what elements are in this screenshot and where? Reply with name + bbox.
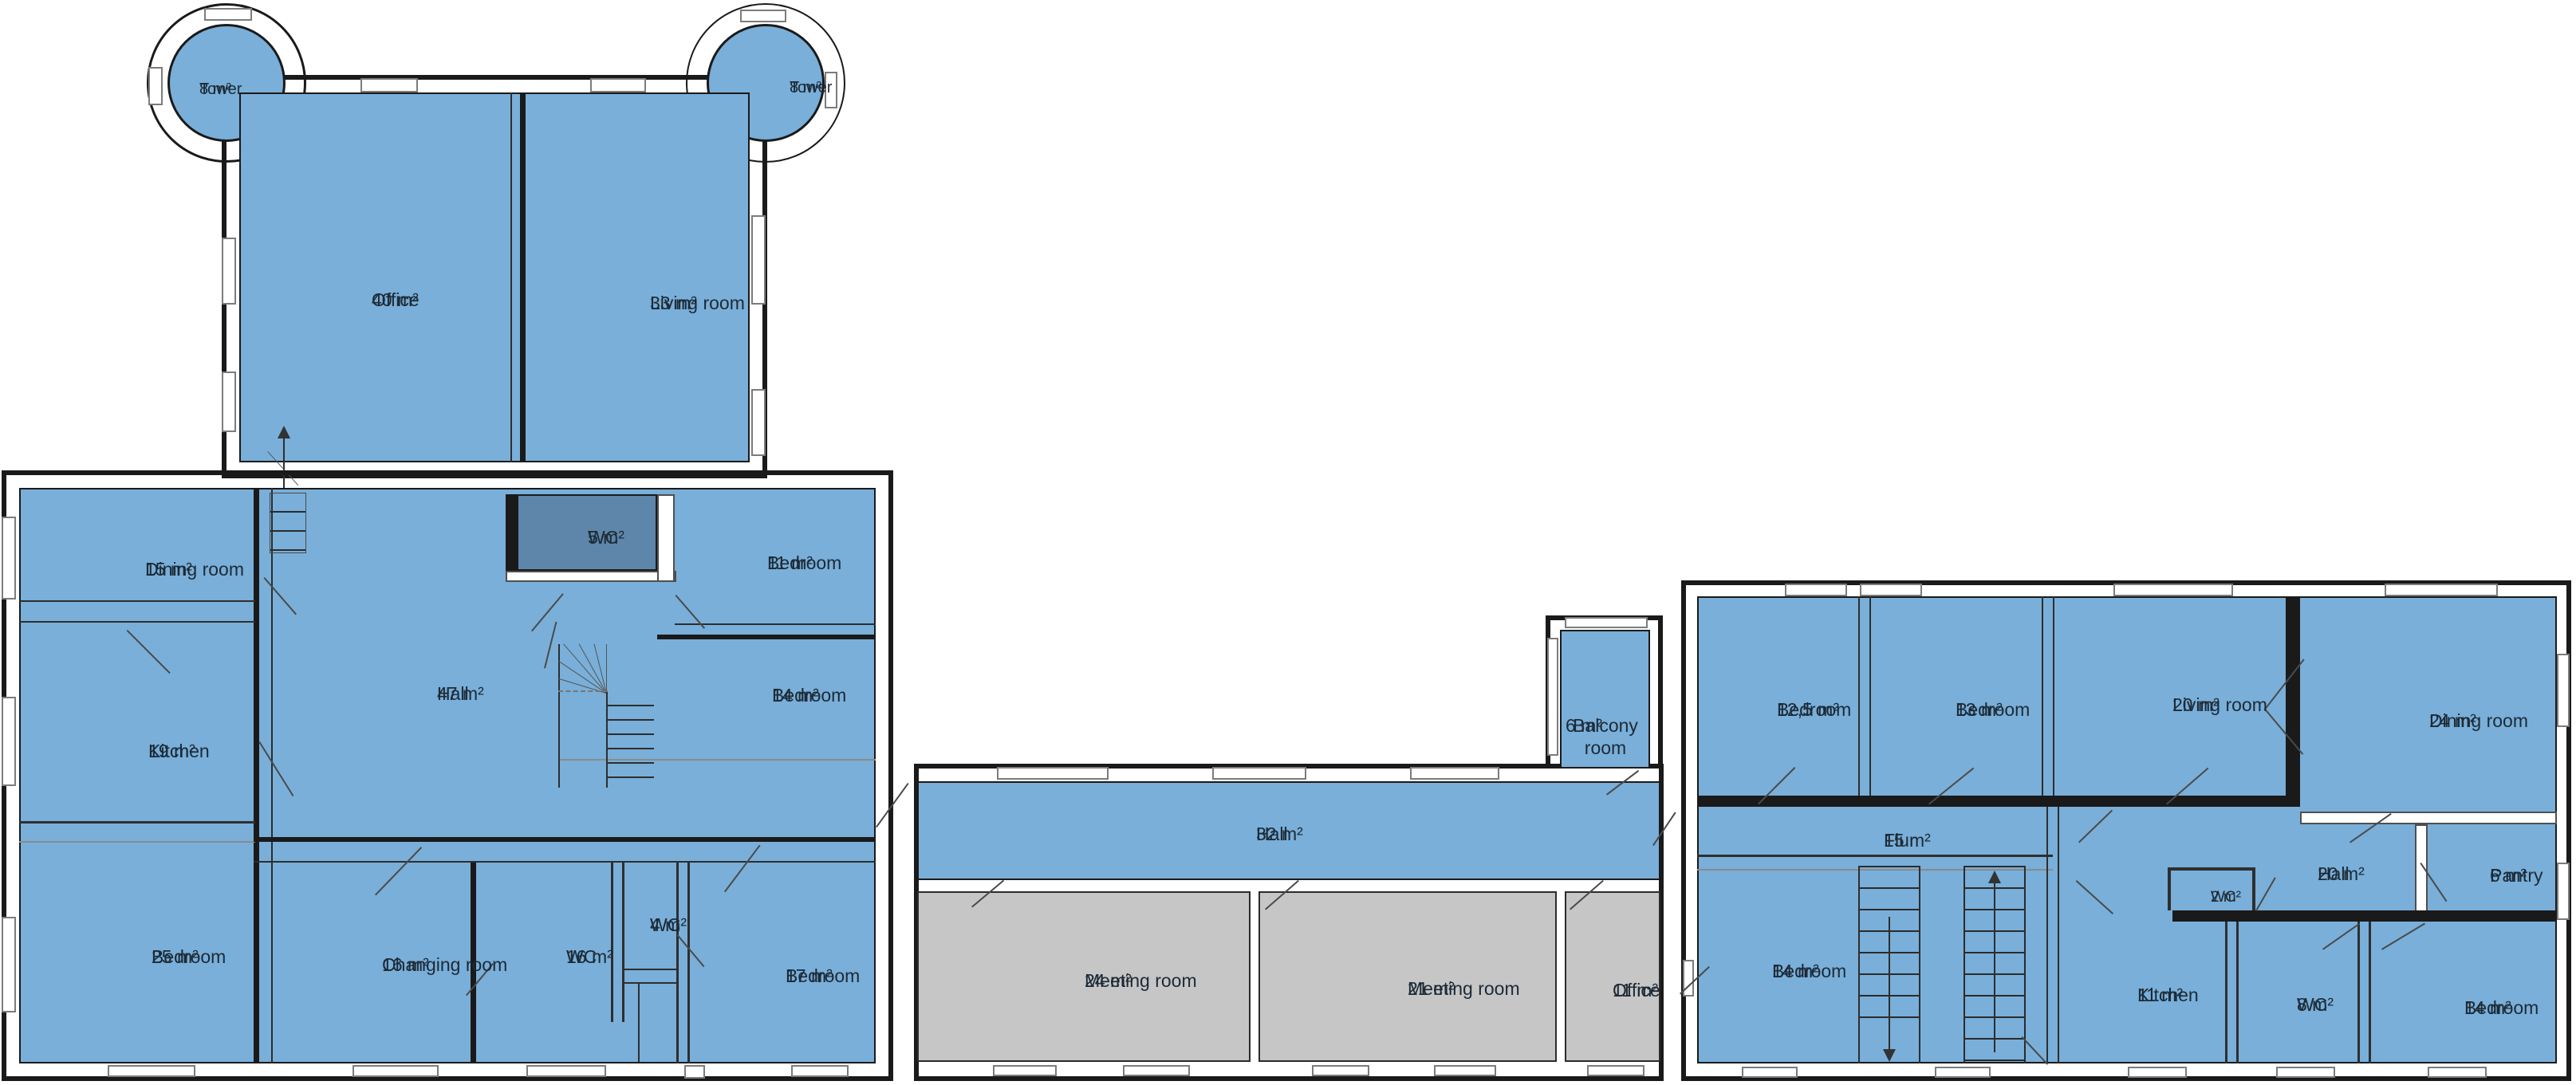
room-name: Hall [1256,823,1288,845]
room-name: WC [588,526,618,548]
room-name: Bedroom [2464,997,2539,1019]
window [2113,584,2233,596]
window [204,8,252,21]
room-name: Living room [2172,694,2267,716]
wall [2172,910,2557,922]
wall [675,623,876,625]
wall [1858,596,1860,796]
window [1785,584,1847,596]
window [1410,767,1499,780]
staircase-winder-tread [606,644,607,694]
wall [19,621,255,623]
window [740,10,786,22]
window [1742,1067,1798,1078]
staircase-winder-tread [608,705,654,706]
window [2557,654,2570,727]
wall [2168,867,2171,910]
room-name: Dining room [2429,710,2528,732]
staircase-winder-edge [558,644,560,788]
window [1860,584,1922,596]
wall [2357,922,2360,1063]
staircase-winder-tread [608,748,654,749]
staircase-arrow-line [1994,880,1995,1052]
room-name: Office [372,289,419,311]
room-name: WC [566,945,597,968]
wall [506,494,517,571]
staircase-winder-dash [558,690,608,692]
room-name: Office [1613,979,1660,1001]
room-name: Flur [1884,829,1916,851]
fixture [624,982,676,984]
window [1547,638,1558,756]
wall [510,92,512,462]
window [751,215,766,305]
room-name: Meeting room [1085,969,1197,992]
window [1123,1065,1190,1076]
wall [254,488,259,1063]
room-name: Bedroom [1956,698,2030,721]
window [222,371,236,432]
room-name: Bedroom [1777,698,1851,721]
window [2,517,16,600]
wall [2415,824,2428,912]
wall [19,600,255,602]
wall [2058,807,2059,1063]
window [2,917,16,1012]
staircase-arrow-line [1889,917,1890,1051]
room-name: Bedroom [786,965,860,987]
staircase-winder-rail [606,692,608,788]
wall [271,488,273,1063]
wall [254,837,876,842]
wall [1869,596,1871,796]
wall [1697,796,2300,807]
fixture [638,982,640,1062]
wall [687,863,690,1063]
window [791,1065,849,1077]
wall [254,861,876,863]
wall [657,494,675,582]
window [526,1065,606,1077]
building-north-floor [239,92,750,462]
window [1565,617,1648,628]
window [1587,1065,1644,1076]
room-name: Pantry [2490,864,2543,886]
room-name: Kitchen [2137,984,2199,1006]
window [2,697,16,786]
staircase-arrow-down [1883,1049,1896,1062]
window [1312,1065,1369,1076]
window [684,1065,705,1079]
wall [2252,867,2255,910]
entry-arrow-head [278,426,290,438]
room-name: WC [650,914,680,936]
room-wc-5-floor[interactable] [517,494,657,571]
room-name: Balcony room [1566,714,1645,759]
wall [506,571,676,582]
window [590,78,646,92]
window [1212,767,1306,780]
fixture [624,969,676,970]
wall [2236,922,2239,1063]
wall [2053,596,2054,796]
room-name: Hall [2318,863,2350,885]
wall [622,863,624,1022]
room-name: Dining room [145,558,244,580]
wall [657,635,876,639]
room-name: Tower [790,78,832,97]
window [2276,1067,2335,1078]
window [222,238,236,305]
staircase-edge [1919,866,1920,1063]
wall [1697,855,2053,857]
window [2385,584,2498,596]
room-name: Meeting room [1408,977,1520,1000]
window [353,1065,439,1077]
staircase-winder-tread [608,733,654,735]
window [1683,960,1694,997]
wall [2225,922,2227,1063]
room-name: Living room [650,292,745,314]
wall [2300,812,2557,824]
wall [1249,891,1260,1062]
room-name: Kitchen [148,740,210,762]
room-name: WC [2297,993,2327,1016]
window [993,1065,1057,1076]
window [1434,1065,1496,1076]
wall [611,863,613,1022]
window [2557,863,2570,920]
wall [2042,596,2043,796]
staircase-winder-tread [608,719,654,721]
window [360,78,418,92]
room-name: Bedroom [152,945,226,968]
staircase-edge [1858,866,1860,1063]
wall [2369,922,2371,1063]
room-name: WC [2211,888,2236,906]
room-name: Hall [437,682,469,705]
window [108,1065,195,1077]
staircase-arrow-up [1988,871,2001,883]
window [997,767,1109,780]
wall [2168,867,2255,871]
wall [1555,891,1566,1062]
room-name: Tower [199,80,242,99]
window [2128,1067,2187,1078]
window [751,389,766,456]
room-name: Bedroom [1772,960,1846,982]
staircase-winder-tread [608,762,654,764]
wall [520,92,526,462]
room-name: Bedroom [772,684,846,706]
room-name: Bedroom [767,552,841,574]
window [2428,1067,2487,1078]
room-name: Changing room [382,953,507,976]
building-east-floor [1697,596,2557,1063]
window [1935,1067,1991,1078]
staircase-hall-north [270,493,306,553]
staircase-winder-tread [608,776,654,778]
floor-plan-canvas: 8 m² Tower 8 m² Tower 40 m² Office 33 m²… [0,0,2576,1085]
meeting-rooms-floor [917,891,1660,1062]
wall [19,841,255,843]
wall [19,821,255,824]
wall [676,863,679,1063]
window [148,67,163,105]
wall [2286,596,2300,797]
wall [2046,807,2048,1063]
